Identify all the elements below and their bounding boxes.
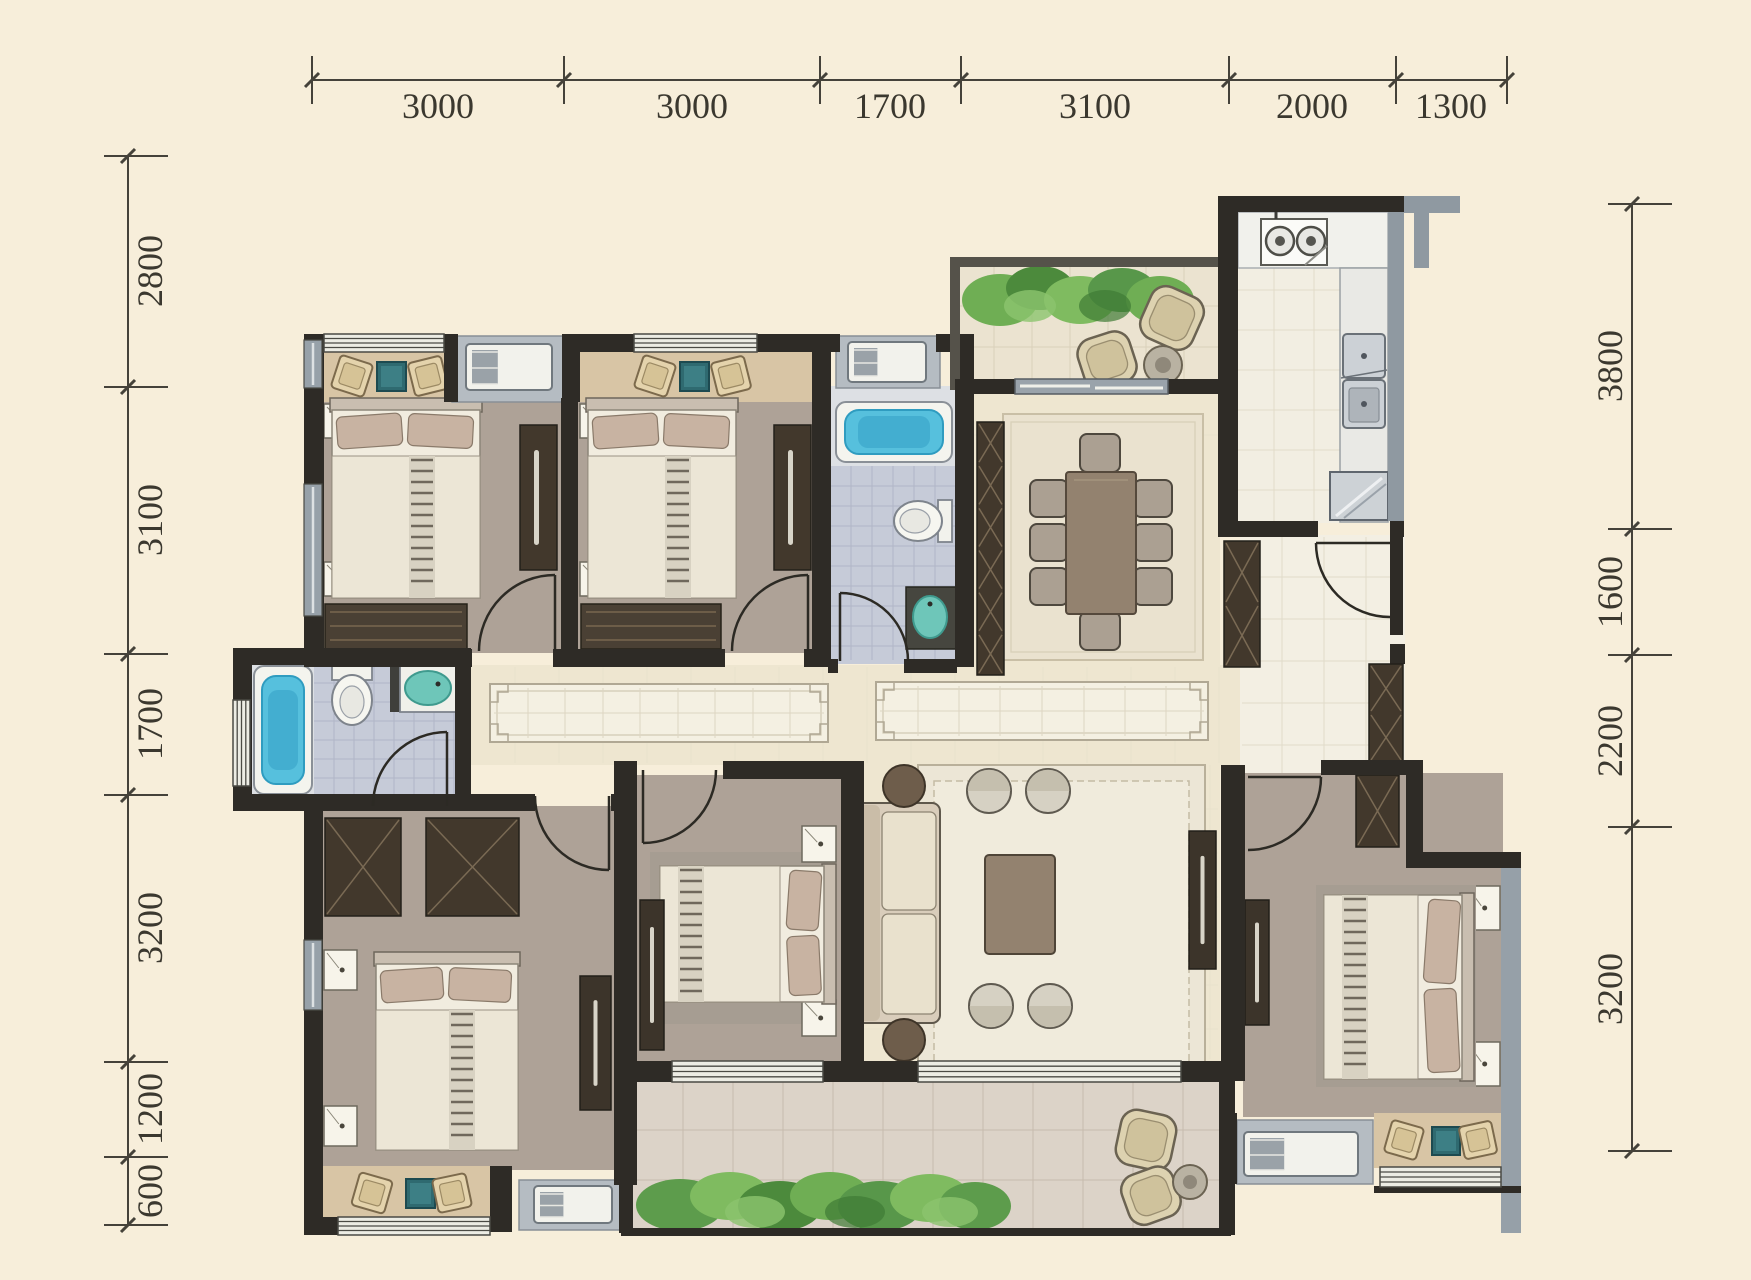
svg-text:1300: 1300 — [1415, 86, 1487, 126]
svg-text:1200: 1200 — [130, 1073, 170, 1145]
svg-text:2800: 2800 — [130, 235, 170, 307]
svg-text:3200: 3200 — [130, 892, 170, 964]
svg-text:1700: 1700 — [130, 688, 170, 760]
svg-text:3800: 3800 — [1590, 330, 1630, 402]
svg-text:2000: 2000 — [1276, 86, 1348, 126]
svg-text:3000: 3000 — [402, 86, 474, 126]
svg-text:1600: 1600 — [1590, 556, 1630, 628]
svg-text:3100: 3100 — [1059, 86, 1131, 126]
svg-text:3100: 3100 — [130, 484, 170, 556]
svg-text:2200: 2200 — [1590, 705, 1630, 777]
svg-text:600: 600 — [130, 1164, 170, 1218]
svg-text:3200: 3200 — [1590, 953, 1630, 1025]
svg-text:3000: 3000 — [656, 86, 728, 126]
svg-text:1700: 1700 — [854, 86, 926, 126]
